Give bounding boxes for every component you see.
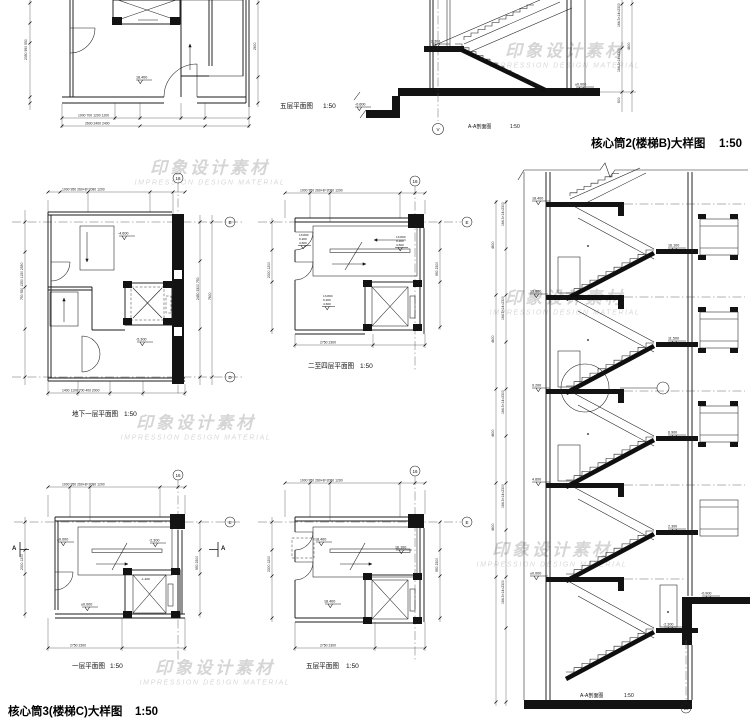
shear-wall <box>172 214 184 384</box>
dimension-chain-left: 4600 4600 4600 4600 164.3×14=2300 164.3×… <box>491 200 508 706</box>
dim-text: 164.3×14=2300 <box>501 580 505 604</box>
dimension-chain-left: 750 550 1350 1150 2550 <box>20 210 27 385</box>
elevator-shaft <box>363 280 422 331</box>
dim-text: 2600 <box>253 42 257 50</box>
section-scale: 1:50 <box>624 693 634 699</box>
dim-text: 2450 3300 750 <box>196 277 200 300</box>
axis-label: 16 <box>175 473 181 478</box>
counterweight <box>410 296 415 318</box>
dim-text: 4600 <box>491 523 495 531</box>
level-value: 11.500 <box>668 337 679 341</box>
axis-label: V <box>436 127 440 132</box>
level-value: 13.800 <box>530 290 541 294</box>
sheet-title-core3: 核心筒3(楼梯C)大样图 <box>8 704 122 718</box>
dim-text: 2750 2300 <box>320 341 336 345</box>
dim-text: 2300 1200 <box>267 262 271 278</box>
plan-scale: 1:50 <box>110 663 123 670</box>
plan-label: 二至四层平面图 <box>308 362 355 370</box>
plan-scale: 1:50 <box>323 103 336 110</box>
dimension-chain-right: 950 2300 <box>435 221 442 331</box>
stair-flight <box>313 226 417 276</box>
dimension-chain-top: 1000 950 260×8=2080 1200 <box>47 483 187 522</box>
plan-label: 一层平面图 <box>72 662 105 670</box>
plan-scale: 1:50 <box>124 411 137 418</box>
cut-letter: A <box>12 546 17 552</box>
elevator-shaft: -1.400 <box>123 568 180 618</box>
break-slash <box>345 242 362 270</box>
level-value: -0.900 <box>701 592 711 596</box>
plan-scale: 1:50 <box>346 663 359 670</box>
section-stair-b: -0.600 2.300 ±0.000 164.3×14=2300 164.3×… <box>354 0 636 135</box>
section-cut-mark-right: A <box>209 542 226 557</box>
stacked-levels-right: 13.800 9.200 4.600 <box>395 235 408 251</box>
door-swing <box>51 262 70 281</box>
elevator-shaft <box>112 0 180 25</box>
plan-label: 五层平面图 <box>280 102 313 110</box>
dimension-chain-top: 1000 950 260×8=2080 1200 <box>47 188 187 215</box>
stacked-levels-lower: 13.800 9.200 4.600 <box>322 294 335 310</box>
level-value: 2.300 <box>431 40 440 44</box>
dim-text: 1000 950 260×8=2080 1200 <box>62 188 105 192</box>
level-marker: ±0.000 <box>57 538 74 546</box>
dim-text: 4600 <box>491 335 495 343</box>
dim-text: 4600 <box>627 42 631 50</box>
counterweight <box>166 296 171 313</box>
axis-label: 16 <box>412 179 418 184</box>
dimension-chain-right: 2450 3300 750 7600 <box>196 215 214 385</box>
level-value: 4.600 <box>299 241 307 245</box>
dim-text: 1000 950 260×8=2080 1200 <box>62 483 105 487</box>
level-marker: 18.400 <box>315 538 332 546</box>
plan-floors-2-4: 16 E 1000 950 260×8=2080 1200 13.800 9.2… <box>258 176 472 370</box>
level-value: ±0.000 <box>575 83 586 87</box>
dim-text: 600 <box>617 97 621 103</box>
dimension-chain-left: 2300 1200 <box>20 517 27 618</box>
stair-handrail <box>92 549 162 552</box>
column <box>408 514 424 528</box>
dimension-chain-right: 2600 <box>253 0 260 107</box>
dim-text: 164.3×14=2300 <box>501 484 505 508</box>
level-marker: 18.400 <box>324 600 341 608</box>
level-value: 16.100 <box>395 546 406 550</box>
level-marker: -5.300 <box>136 338 153 346</box>
axis-label: 16 <box>683 706 689 711</box>
dimension-chain-bottom: 2750 2300 <box>47 618 187 651</box>
dim-text: 2300 1200 <box>20 554 24 570</box>
section-scale: 1:50 <box>510 124 520 130</box>
floor-level-markers: 18.400 13.800 9.200 4.600 ±0.000 <box>530 197 550 580</box>
break-line <box>518 163 748 180</box>
level-value: 2.300 <box>668 525 677 529</box>
plan-basement: 16 E D 1000 950 260×8=2080 1200 -4.600 <box>12 173 243 418</box>
sheet-title-core2: 核心筒2(楼梯B)大样图 <box>591 136 705 150</box>
cut-flights <box>566 250 654 679</box>
door-swing <box>164 64 197 97</box>
detail-bubble <box>657 382 669 394</box>
axis-label: D <box>228 375 232 380</box>
level-value: -5.300 <box>136 338 146 342</box>
counterweight <box>410 589 415 611</box>
dimension-chain-left: 2300 1200 <box>267 517 274 622</box>
level-marker: ±0.000 <box>81 603 98 611</box>
level-marker: 18.400 <box>136 76 152 84</box>
dim-text: 4600 <box>491 241 495 249</box>
stair-handrail <box>330 249 410 252</box>
section-label: A-A剖面图 <box>468 123 491 130</box>
dimension-chain-top: 1000 950 260×8=2080 1200 <box>284 189 427 223</box>
dimension-chain-bottom: 1400 1100 700 400 2000 <box>47 381 187 396</box>
ground-slab <box>398 88 600 96</box>
level-marker: -0.600 <box>355 103 371 111</box>
break-slash <box>112 543 127 570</box>
level-value: 18.400 <box>136 76 147 80</box>
dim-text: 164.3×14=2300 <box>617 48 621 72</box>
section-stair-c: 4600 4600 4600 4600 164.3×14=2300 164.3×… <box>491 163 750 713</box>
axis-label: 16 <box>412 469 418 474</box>
cad-drawing-sheet: 18.400 1000 700 1200 1200 2600 2400 2400… <box>0 0 750 723</box>
double-door-swing <box>82 336 100 372</box>
dim-text: 164.3×14=2300 <box>501 296 505 320</box>
axis-label: E <box>228 520 231 525</box>
axis-label: E <box>465 520 468 525</box>
door-swing <box>295 532 313 580</box>
dim-text: 2750 2300 <box>320 644 336 648</box>
dim-text: 950 2300 <box>435 558 439 572</box>
dim-text: 2350 950 550 <box>24 39 28 60</box>
level-value: ±0.000 <box>530 572 541 576</box>
dimension-chain-left: 2300 1200 <box>267 218 274 334</box>
dimension-chain-top: 1000 950 260×8=2080 1200 <box>284 479 427 522</box>
detail-circle <box>561 364 609 412</box>
stair-flight <box>80 226 114 270</box>
sheet-title-core2-scale: 1:50 <box>719 138 742 150</box>
elevator-shaft <box>363 573 422 624</box>
sheet-title-core3-scale: 1:50 <box>135 706 158 718</box>
level-value: -2.300 <box>149 539 159 543</box>
plan-floor1: 16 E 1000 950 260×8=2080 1200 ±0.000 -2.… <box>12 470 240 670</box>
dim-text: 4600 <box>491 429 495 437</box>
dim-text: 1000 950 260×8=2080 1200 <box>300 479 343 483</box>
dimension-chain-right: 950 2300 <box>195 521 202 619</box>
level-value: -2.300 <box>663 623 673 627</box>
dim-text: 2600 2400 2400 <box>85 122 110 126</box>
dim-text: 164.3×14=2300 <box>501 202 505 226</box>
dimension-chain-bottom: 2750 2300 <box>294 334 427 348</box>
landing-slab <box>424 46 464 52</box>
door-swing <box>70 28 95 53</box>
base-slab <box>524 700 692 709</box>
cut-letter: A <box>221 546 226 552</box>
level-value: 9.200 <box>532 384 541 388</box>
elevator-shaft <box>123 281 172 325</box>
dim-text: 164.3×14=2300 <box>617 3 621 27</box>
stair-flight-outline <box>433 0 572 52</box>
level-value: -4.600 <box>118 232 128 236</box>
dim-text: 950 2300 <box>195 556 199 570</box>
level-value: -1.400 <box>141 577 150 581</box>
level-marker: -2.300 <box>149 539 166 547</box>
floor-slabs <box>546 202 745 591</box>
level-value: ±0.000 <box>81 603 92 607</box>
dim-text: 164.3×14=2300 <box>501 390 505 414</box>
axis-label: E <box>228 220 231 225</box>
axis-label: E <box>465 220 468 225</box>
level-value: ±0.000 <box>57 538 68 542</box>
level-value: 18.400 <box>324 600 335 604</box>
stair-flight-cut <box>462 50 545 90</box>
plan-label: 五层平面图 <box>306 662 339 670</box>
dimension-chain-right: 950 2300 <box>435 521 442 623</box>
counterweight <box>168 584 173 606</box>
level-value: 4.600 <box>323 302 331 306</box>
drawing-canvas: 18.400 1000 700 1200 1200 2600 2400 2400… <box>0 0 750 723</box>
level-value: 18.400 <box>532 197 543 201</box>
exterior-ground-slab <box>692 597 750 604</box>
axis-label: 16 <box>175 176 181 181</box>
level-value: 18.400 <box>315 538 326 542</box>
outline-flights <box>566 168 654 638</box>
dimension-chain-bottom: 1000 700 1200 1200 2600 2400 2400 <box>61 103 251 128</box>
break-slash <box>350 543 365 570</box>
dim-text: 950 2300 <box>435 262 439 276</box>
plan-floor5-core3: 16 E 1000 950 260×8=2080 1200 18.400 16.… <box>258 466 472 670</box>
plan-scale: 1:50 <box>360 363 373 370</box>
dimension-chain-bottom: 2750 2300 <box>294 622 427 651</box>
dim-text: 1400 1100 700 400 2000 <box>62 389 100 393</box>
level-marker: -4.600 <box>118 232 135 240</box>
level-value: 16.100 <box>668 244 679 248</box>
dimension-chain-right: 164.3×14=2300 164.3×14=2300 4600 600 <box>600 0 636 112</box>
stair-flight <box>313 527 417 577</box>
stacked-levels-left: 13.800 9.200 4.600 <box>298 233 311 249</box>
level-value: 6.900 <box>668 431 677 435</box>
dim-text: 1000 950 260×8=2080 1200 <box>300 189 343 193</box>
section-label: A-A剖面图 <box>580 692 603 699</box>
level-value: 4.600 <box>396 243 404 247</box>
level-value: -0.600 <box>355 103 365 107</box>
dim-text: 2750 2300 <box>70 644 86 648</box>
dim-text: 750 550 1350 1150 2550 <box>20 262 24 300</box>
dim-text: 2300 1200 <box>267 556 271 572</box>
dim-text: 1000 700 1200 1200 <box>78 114 109 118</box>
level-value: 4.600 <box>532 478 541 482</box>
plan-label: 地下一层平面图 <box>72 409 119 418</box>
dim-text: 7600 <box>208 292 212 300</box>
dimension-chain-left: 2350 950 550 <box>24 0 32 110</box>
stair-windows <box>698 214 738 536</box>
plan-top-left-floor5: 18.400 1000 700 1200 1200 2600 2400 2400… <box>24 0 336 128</box>
